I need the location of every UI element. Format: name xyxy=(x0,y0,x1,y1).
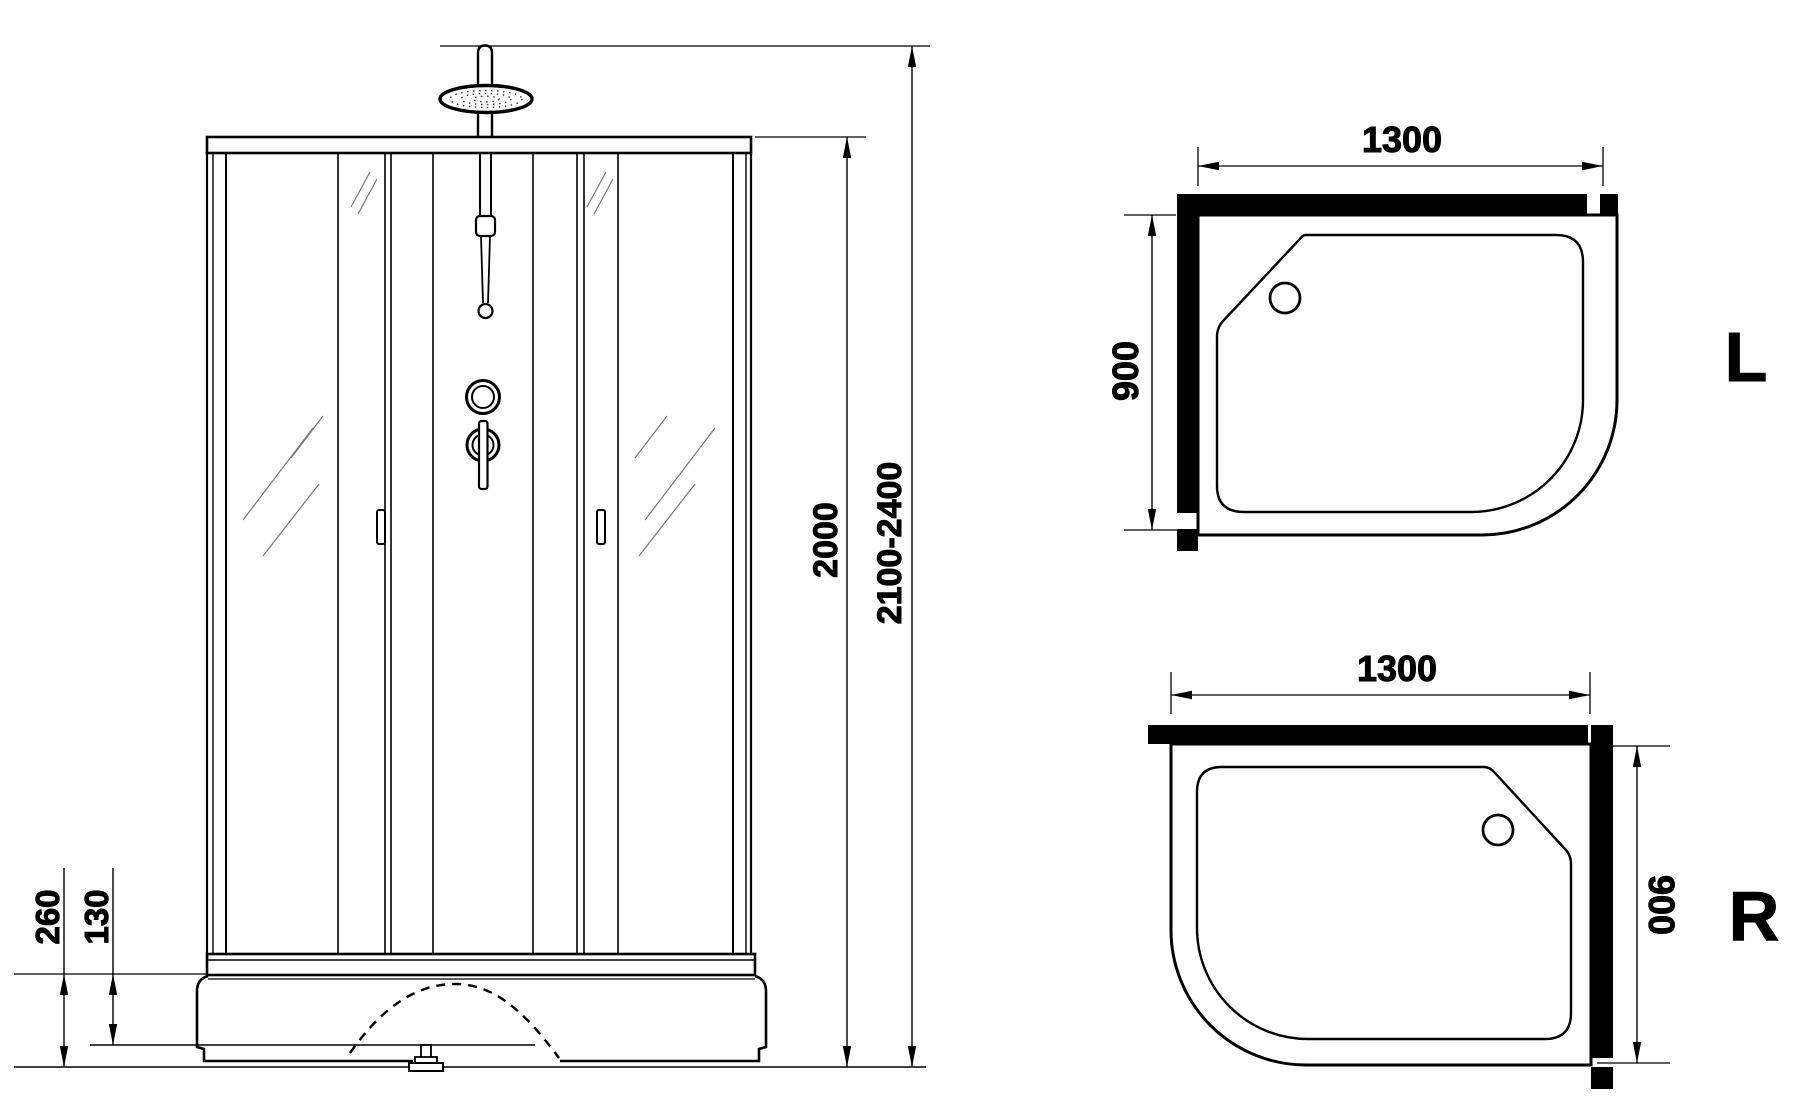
dim-label-tray-height: 260 xyxy=(29,889,66,944)
reference-lines xyxy=(14,46,930,1067)
shower-head-icon xyxy=(440,46,532,138)
drawing-canvas: 260 130 2000 2100-2400 1300 xyxy=(0,0,1800,1116)
glass-panel-lines xyxy=(207,153,751,954)
technical-drawing: 260 130 2000 2100-2400 1300 xyxy=(0,0,1800,1116)
tray-outline-right xyxy=(1171,744,1591,1065)
plan-view-left: 1300 900 L xyxy=(1105,119,1767,551)
dim-label-tray-inner-height: 130 xyxy=(78,889,115,944)
plan-view-right: 1300 900 R xyxy=(1148,648,1779,1089)
dim-label-total-height: 2100-2400 xyxy=(871,462,909,625)
dimension-arrows xyxy=(60,46,916,1067)
tray-outline-left xyxy=(1198,215,1617,535)
dim-label-depth-right: 900 xyxy=(1641,875,1682,935)
adjustable-foot-icon xyxy=(409,1045,443,1071)
faucet-controls xyxy=(467,381,500,490)
dim-label-width-right: 1300 xyxy=(1357,648,1437,689)
door-handles xyxy=(377,510,605,544)
dim-label-depth-left: 900 xyxy=(1105,341,1146,401)
tray-apron-dashed-arch xyxy=(350,984,559,1058)
shower-tray xyxy=(197,954,766,1071)
mixer-lever xyxy=(479,421,488,489)
side-label-right: R xyxy=(1729,877,1780,955)
hand-shower-icon xyxy=(476,153,495,318)
cabin-frame xyxy=(207,137,751,954)
side-label-left: L xyxy=(1725,318,1768,396)
dim-label-width-left: 1300 xyxy=(1362,119,1442,160)
front-view: 260 130 2000 2100-2400 xyxy=(14,46,930,1072)
dim-label-cabin-height: 2000 xyxy=(807,502,845,578)
dimension-lines xyxy=(64,46,912,1067)
